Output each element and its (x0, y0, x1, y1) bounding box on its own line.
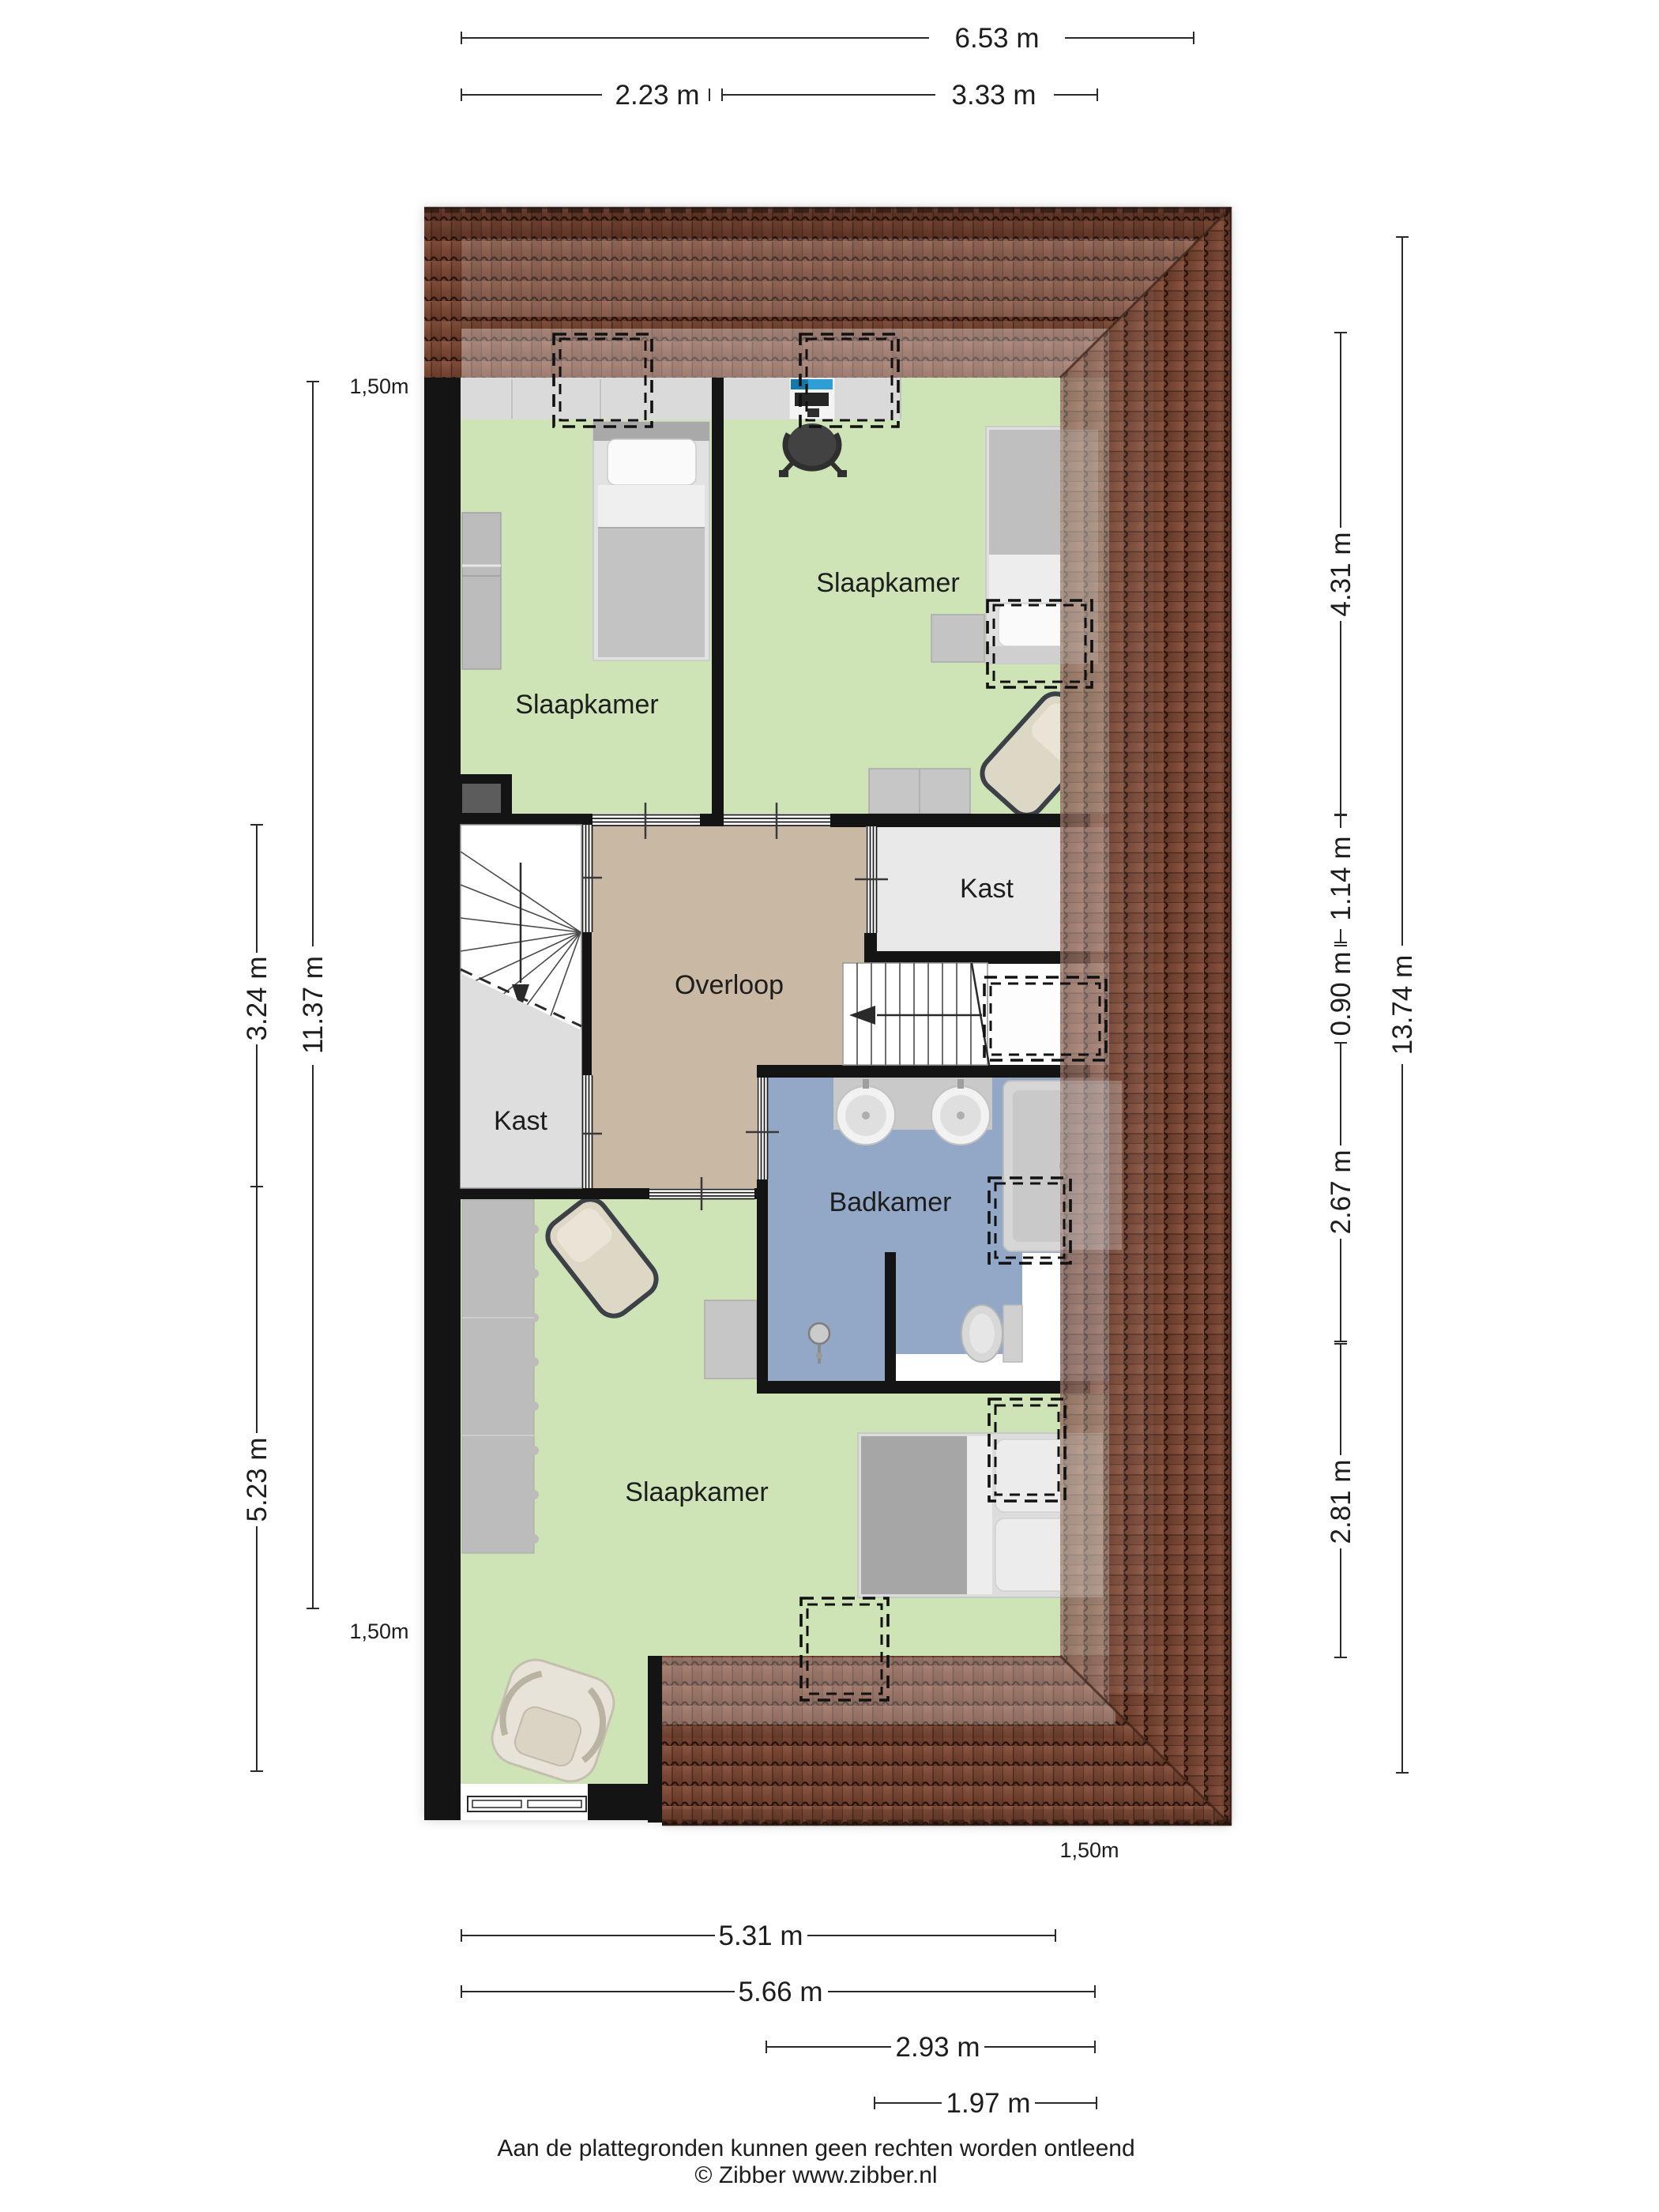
svg-text:Slaapkamer: Slaapkamer (625, 1477, 768, 1507)
svg-text:3.24 m: 3.24 m (242, 957, 273, 1041)
svg-text:1.14 m: 1.14 m (1326, 837, 1356, 921)
svg-text:Badkamer: Badkamer (829, 1187, 952, 1217)
svg-text:Kast: Kast (494, 1106, 548, 1136)
svg-text:1.97 m: 1.97 m (946, 2088, 1031, 2119)
svg-text:5.23 m: 5.23 m (242, 1438, 273, 1522)
svg-text:4.31 m: 4.31 m (1326, 532, 1356, 617)
svg-text:3.33 m: 3.33 m (952, 80, 1036, 111)
svg-text:1,50m: 1,50m (349, 1619, 408, 1643)
svg-text:2.67 m: 2.67 m (1326, 1150, 1356, 1235)
svg-text:2.23 m: 2.23 m (615, 80, 700, 111)
svg-text:1,50m: 1,50m (349, 374, 408, 398)
svg-text:5.66 m: 5.66 m (739, 1977, 823, 2007)
svg-text:Slaapkamer: Slaapkamer (816, 568, 959, 598)
svg-text:13.74 m: 13.74 m (1387, 955, 1418, 1055)
svg-text:11.37 m: 11.37 m (298, 956, 329, 1054)
svg-text:6.53 m: 6.53 m (955, 23, 1040, 54)
svg-text:Slaapkamer: Slaapkamer (515, 690, 658, 720)
svg-text:Overloop: Overloop (675, 970, 784, 1000)
svg-text:5.31 m: 5.31 m (719, 1920, 803, 1951)
svg-text:1,50m: 1,50m (1059, 1838, 1119, 1862)
svg-text:© Zibber www.zibber.nl: © Zibber www.zibber.nl (694, 2162, 937, 2188)
svg-text:2.81 m: 2.81 m (1326, 1460, 1356, 1544)
svg-text:2.93 m: 2.93 m (896, 2032, 980, 2063)
svg-text:Aan de plattegronden kunnen ge: Aan de plattegronden kunnen geen rechten… (497, 2135, 1134, 2161)
svg-text:Kast: Kast (960, 874, 1014, 904)
svg-text:0.90 m: 0.90 m (1326, 952, 1356, 1036)
